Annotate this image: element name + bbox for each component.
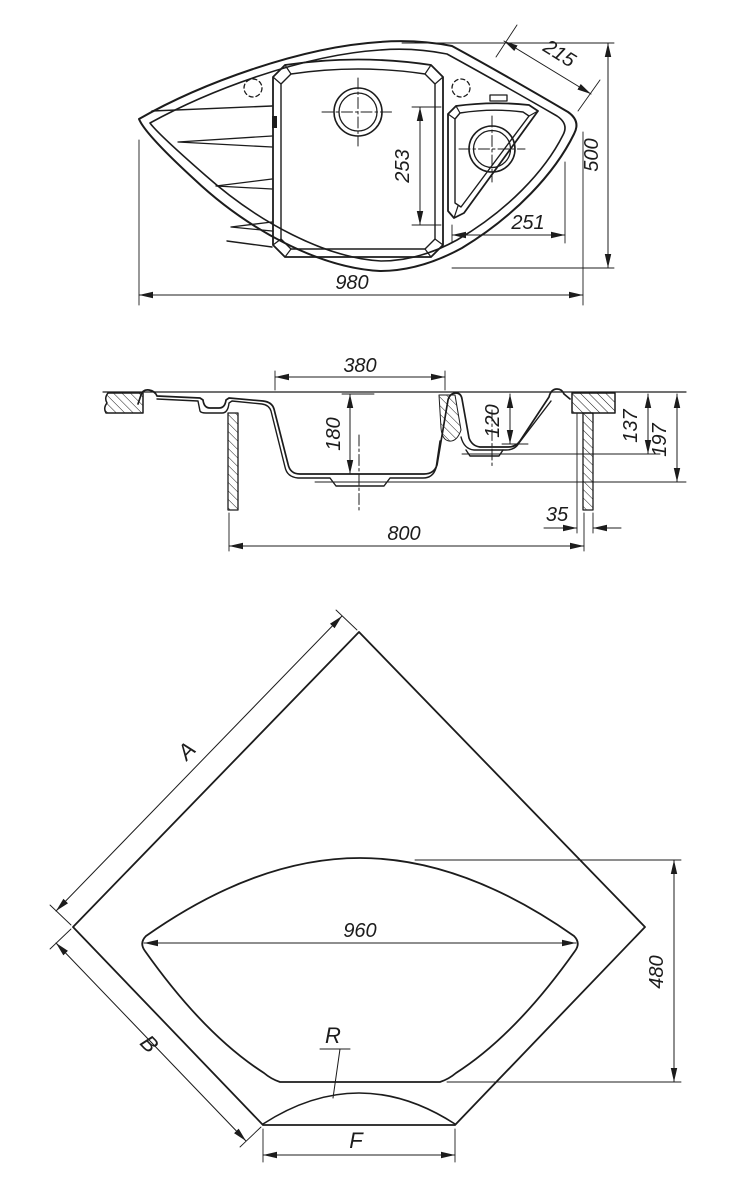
dim-label-A: A [171,737,201,766]
dim-label-960: 960 [343,920,376,942]
drawing-canvas: 980 500 215 253 251 [0,0,746,1200]
technical-drawing: 980 500 215 253 251 [0,0,746,1200]
dim-label-137: 137 [620,408,642,442]
cabinet-panel-right [583,413,593,510]
sink-profile-inner [138,389,570,474]
basin-divider-hatch [439,395,461,441]
drainboard-top-edge [152,106,272,111]
faucet-hole-left [244,79,262,97]
dim-label-251: 251 [510,212,544,234]
top-view: 980 500 215 253 251 [139,25,614,305]
sink-outer-outline [139,41,576,271]
dim-label-980: 980 [335,272,368,294]
dim-cutout-depth: 480 [415,860,681,1082]
dim-label-500: 500 [581,138,603,171]
dim-label-R: R [325,1023,341,1048]
dim-base-width: 800 [229,513,584,551]
radius-callout: R [320,1023,350,1098]
dim-label-180: 180 [323,417,345,450]
sink-profile-outer [157,399,440,486]
dim-edge-b: B [50,929,261,1147]
dim-label-215: 215 [538,35,580,72]
small-basin-drain-boss [466,450,503,456]
dim-label-253: 253 [392,149,414,183]
small-basin-outer-shell [461,401,551,450]
cabinet-panel-left [228,413,238,510]
dim-label-800: 800 [387,523,420,545]
dim-main-basin-depth: 180 [323,394,374,474]
dim-label-35: 35 [546,504,569,526]
countertop-right-block [572,393,615,413]
front-radius-arc [263,1093,455,1124]
dim-small-basin-depth: 120 [482,394,528,444]
section-view: 380 180 120 137 197 35 [103,355,686,551]
faucet-hole-right [452,79,470,97]
drainboard-groove [178,136,272,147]
dim-label-197: 197 [649,422,671,456]
dim-label-F: F [349,1128,364,1153]
dim-label-480: 480 [646,955,668,988]
dim-label-120: 120 [482,404,504,437]
drainboard-groove [216,179,272,189]
dim-label-B: B [135,1030,163,1058]
dim-corner-edge: 215 [496,25,600,111]
dim-label-380: 380 [343,355,376,377]
dim-edge-a: A [50,610,357,925]
dim-small-bottom-height: 137 [620,394,648,454]
dim-main-basin-width: 380 [275,355,445,390]
dim-cutout-width: 960 [144,920,576,943]
overflow-slot [272,116,277,128]
countertop-left-block [105,393,143,413]
dim-main-bottom-height: 197 [649,394,677,482]
cutout-outline [142,858,578,1082]
overflow-cover [490,95,507,101]
drainboard-bottom-edge [227,241,272,247]
cutout-view: A B 960 480 F R [50,610,681,1162]
countertop-outline [73,632,645,1125]
dim-front-edge: F [263,1128,455,1162]
dim-main-basin-length: 253 [392,107,441,225]
